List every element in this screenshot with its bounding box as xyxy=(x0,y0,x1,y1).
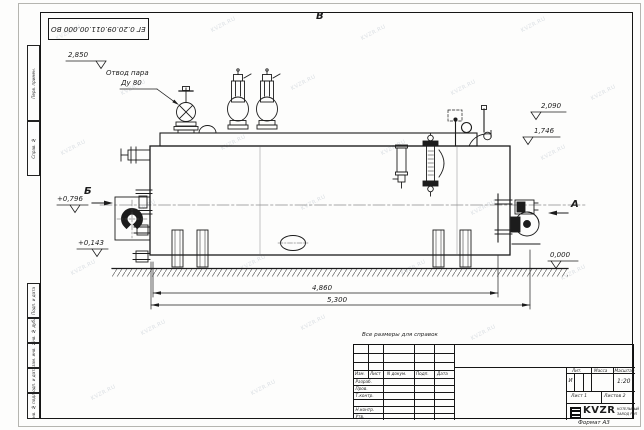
view-label-b: Б xyxy=(84,187,92,197)
view-label-a: А xyxy=(571,200,579,210)
steam-outlet-label-line2: Ду 80 xyxy=(121,80,142,87)
title-block: Изм. Лист N докум. Подп. Дата Разраб. Пр… xyxy=(353,344,634,419)
company-name-line2: ЗАВОД РЭП xyxy=(617,413,637,416)
tb-header-data: Дата xyxy=(437,372,448,376)
tb-row-prov: Пров. xyxy=(356,387,368,391)
drawing-sheet: KVZR.RU KVZR.RU KVZR.RU KVZR.RU KVZR.RU … xyxy=(0,0,644,430)
feed-pump-assembly xyxy=(495,194,540,244)
sheet-format-label: Формат А3 xyxy=(578,421,610,427)
safety-valve-2 xyxy=(257,69,281,129)
elevation-0796: +0,796 xyxy=(57,196,83,203)
steam-outlet-leader xyxy=(120,89,179,105)
water-gauge-small xyxy=(393,145,408,188)
elevation-0000: 0,000 xyxy=(550,252,570,259)
kvzr-logo-text: KVZR xyxy=(583,406,615,416)
boiler-body xyxy=(150,133,510,255)
dome-cap xyxy=(199,126,216,134)
tb-sheets: Листов 2 xyxy=(604,395,626,400)
elevation-0143: +0,143 xyxy=(78,240,104,247)
manhole xyxy=(278,236,308,251)
tb-header-izm: Изм. xyxy=(355,372,365,376)
tb-scale-value: 1:20 xyxy=(617,379,630,385)
tb-header-lit: Лит. xyxy=(572,369,582,373)
steam-outlet-valve xyxy=(174,87,198,134)
tb-header-masshtab: Масштаб xyxy=(615,369,635,373)
safety-valve-1 xyxy=(228,69,252,129)
tb-lit-value: И xyxy=(569,379,573,384)
dimension-4860: 4,860 xyxy=(312,285,332,292)
tb-row-razrab: Разраб. xyxy=(356,380,372,384)
support-legs xyxy=(172,230,471,267)
tb-header-list: Лист xyxy=(370,372,381,376)
tb-header-massa: Масса xyxy=(594,369,607,373)
top-right-fittings xyxy=(448,106,491,147)
tb-header-podp: Подп. xyxy=(416,372,429,376)
view-label-v: В xyxy=(316,12,324,22)
elevation-2850: 2,850 xyxy=(68,52,88,59)
water-level-column xyxy=(423,134,444,197)
tb-sheet: Лист 1 xyxy=(571,395,587,400)
kvzr-logo-icon xyxy=(570,407,581,418)
tb-row-nkontr: Н.контр. xyxy=(356,408,375,412)
elevation-marks xyxy=(57,61,578,268)
dimension-5300: 5,300 xyxy=(327,297,347,304)
burner-unit xyxy=(115,197,150,240)
ground-line xyxy=(112,269,568,277)
tb-row-utv: Утв. xyxy=(356,415,365,419)
reference-note: Все размеры для справок xyxy=(362,333,438,339)
company-name-line1: КОТЕЛЬНЫЙ xyxy=(617,408,639,411)
elevation-1746: 1,746 xyxy=(534,128,554,135)
front-plate-fittings xyxy=(121,147,152,262)
steam-outlet-label-line1: Отвод пара xyxy=(106,70,149,77)
view-arrows xyxy=(92,201,568,216)
elevation-2090: 2,090 xyxy=(541,103,561,110)
tb-header-ndokum: N докум. xyxy=(387,372,406,376)
tb-row-tkontr: Т.контр. xyxy=(356,394,374,398)
